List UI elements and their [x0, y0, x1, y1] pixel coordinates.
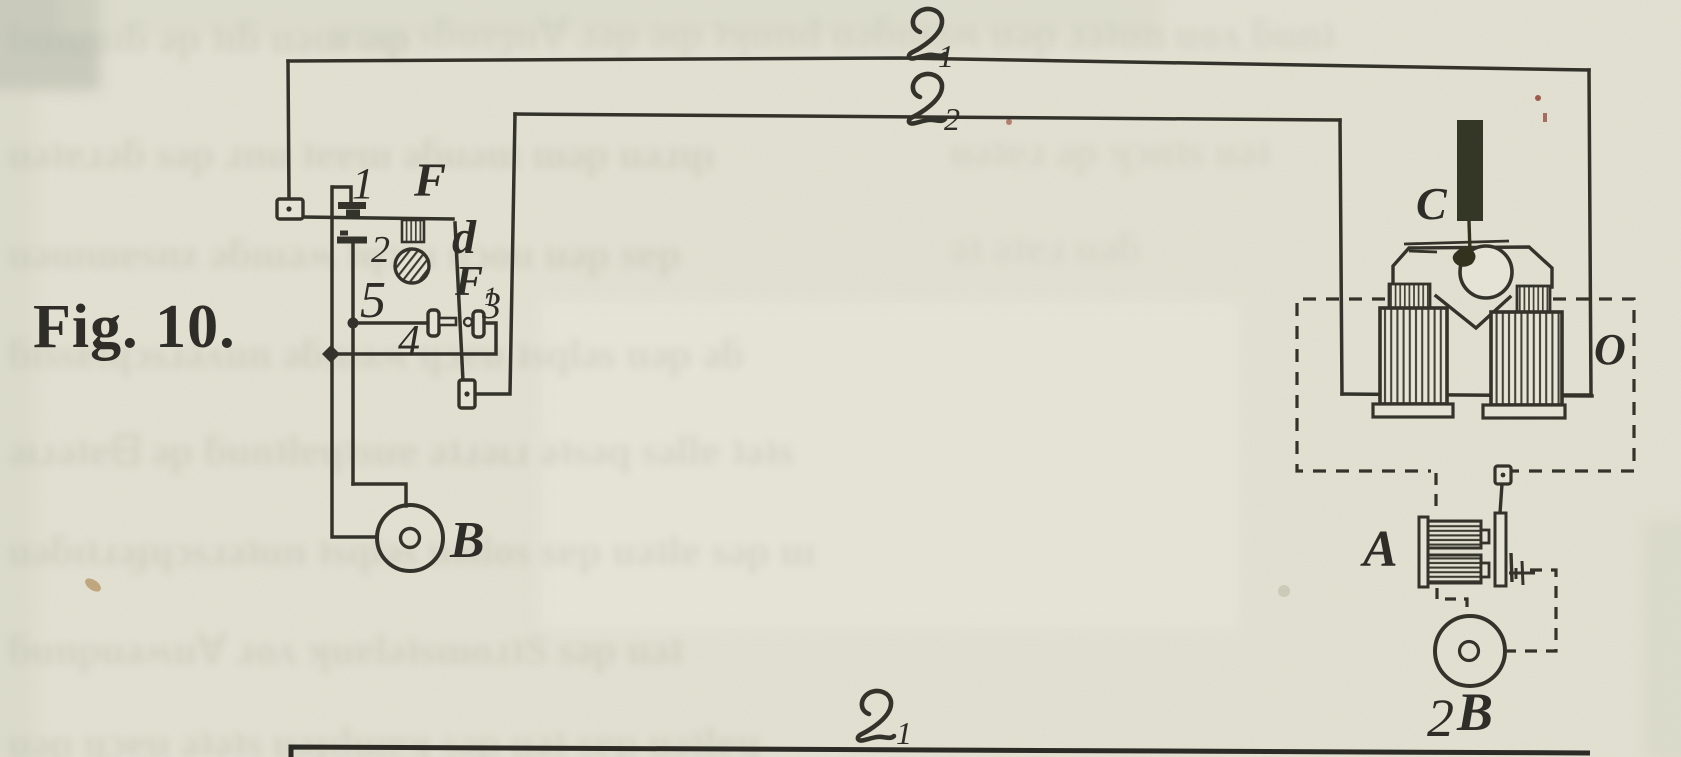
svg-text:d: d [452, 211, 477, 264]
svg-text:1: 1 [896, 715, 912, 751]
svg-text:2: 2 [944, 101, 960, 137]
svg-text:F: F [454, 259, 483, 305]
svg-text:B: B [1456, 682, 1493, 742]
svg-text:O: O [1594, 325, 1626, 374]
svg-text:4: 4 [398, 316, 420, 365]
svg-text:ǝʇ ǝʇɐɹ uǝƃ: ǝʇ ǝʇɐɹ uǝƃ [950, 226, 1141, 272]
svg-text:2: 2 [371, 229, 390, 271]
svg-text:F: F [413, 154, 446, 207]
svg-text:5: 5 [360, 272, 386, 329]
svg-text:C: C [1416, 178, 1448, 229]
svg-text:B: B [449, 512, 485, 569]
svg-text:2: 2 [1427, 688, 1454, 748]
svg-text:1: 1 [352, 159, 374, 208]
svg-text:ɯǝp sƃuɐɟu∀ ɹǝp ǝıp ʇʞund uǝƃı: ɯǝp sƃuɐɟu∀ ɹǝp ǝıp ʇʞund uǝƃıuǝʍ uǝp ɹǝ… [330, 12, 1335, 58]
svg-text:3: 3 [481, 285, 501, 327]
svg-text:uǝp ɥɔɐu ǝʇǝʇs uǝɟdɯɐʞ sǝp uǝʇ: uǝp ɥɔɐu ǝʇǝʇs uǝɟdɯɐʞ sǝp uǝʇ sɐp uǝʇlɐ… [8, 721, 761, 757]
svg-text:Fig. 10.: Fig. 10. [33, 293, 236, 361]
svg-text:1: 1 [938, 38, 954, 74]
svg-text:ǝıɹǝʇɐᗺ ǝp ƃunʇlɐɥʇsuɐ ǝʇɹǝıɹ: ǝıɹǝʇɐᗺ ǝp ƃunʇlɐɥʇsuɐ ǝʇɹǝıɹ ǝʇsǝq sǝll… [8, 429, 794, 475]
svg-text:ƃunpuǝʍu∀ ɹoʌ ʞuɐlǝʇsɯoɹʇS sǝp: ƃunpuǝʍu∀ ɹoʌ ʞuɐlǝʇsɯoɹʇS sǝp uǝʇ [8, 628, 683, 674]
svg-text:A: A [1360, 521, 1398, 578]
svg-text:uǝƃıʇɹǝɟɥɔsɹǝʇun ʇsqlǝs uǝllos: uǝƃıʇɹǝɟɥɔsɹǝʇun ʇsqlǝs uǝllos sɐp uǝʇlɐ… [8, 529, 816, 575]
svg-text:uǝʇɐɹ ǝp ʞɔnʇs uǝʇ: uǝʇɐɹ ǝp ʞɔnʇs uǝʇ [950, 130, 1271, 176]
